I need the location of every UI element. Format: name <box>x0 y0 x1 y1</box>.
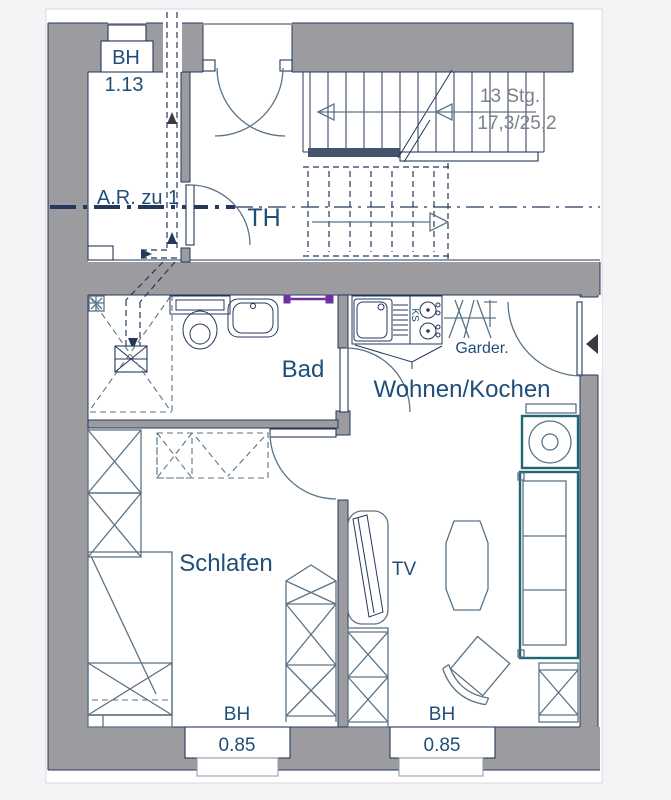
drainboard <box>393 305 408 335</box>
window-br-sill-label: BH <box>429 704 455 725</box>
coat-rack-label: Garder. <box>455 340 508 357</box>
window-br-height-label: 0.85 <box>424 735 461 756</box>
stairs-dimension-label: 17,3/25,2 <box>477 113 556 134</box>
floor-plan-page: BH 1.13 13 Stg. 17,3/25,2 A.R. zu 1 TH B… <box>0 0 671 800</box>
door-leaf <box>186 185 194 245</box>
storage-room-label: A.R. zu 1 <box>97 187 179 209</box>
floor-plan-drawing: BH 1.13 13 Stg. 17,3/25,2 A.R. zu 1 TH B… <box>0 0 671 800</box>
bathroom-label: Bad <box>282 356 325 383</box>
stair-landing-edge <box>308 148 400 157</box>
door-leaf <box>270 429 336 437</box>
window-top-sill-label: BH <box>112 47 140 69</box>
wall-notch <box>88 246 113 260</box>
window-bl-sill-label: BH <box>224 704 250 725</box>
living-kitchen-label: Wohnen/Kochen <box>373 376 550 403</box>
stairs-count-label: 13 Stg. <box>480 86 540 107</box>
bedroom-label: Schlafen <box>179 550 272 577</box>
door-leaf <box>340 348 348 412</box>
stair-hall-label: TH <box>247 204 280 232</box>
door-leaf <box>577 302 582 375</box>
tv-label: TV <box>392 559 417 580</box>
fridge-label: KS <box>409 308 420 322</box>
window-top-outer-sash <box>108 25 146 41</box>
duct-channel <box>163 12 182 72</box>
window-top-height-label: 1.13 <box>105 74 144 96</box>
window-bl-height-label: 0.85 <box>219 735 256 756</box>
stair-base <box>400 152 538 161</box>
